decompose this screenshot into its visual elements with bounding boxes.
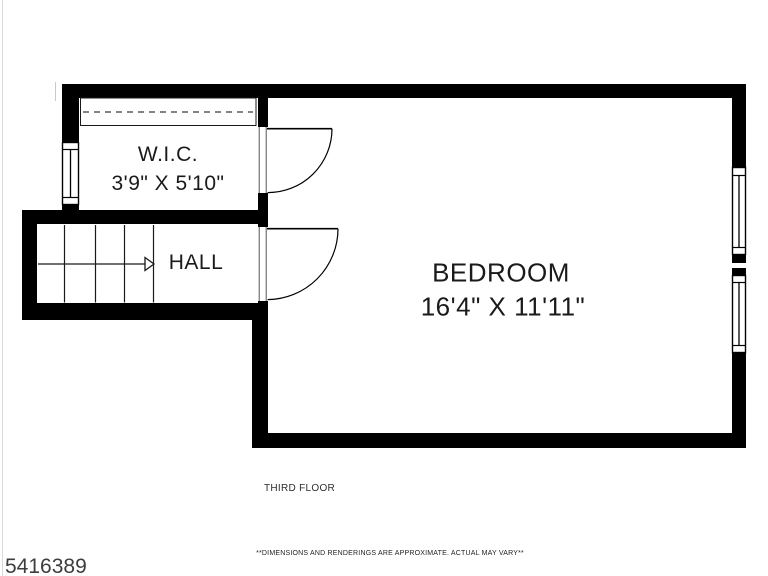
wall-wic-left-lower — [62, 205, 79, 213]
wic-room-dimensions: 3'9" X 5'10" — [112, 172, 225, 196]
wic-window — [63, 143, 79, 205]
bedroom-window-upper — [733, 168, 746, 255]
wic-door-swing-arc — [268, 129, 332, 193]
stairs — [38, 225, 154, 303]
bedroom-room-label: BEDROOM — [432, 258, 570, 289]
wall-top — [62, 84, 746, 98]
stairs-direction-arrow-icon — [145, 258, 154, 271]
hall-room-label: HALL — [169, 251, 224, 275]
hall-door — [259, 227, 338, 301]
wall-hall-left — [22, 210, 37, 320]
wall-divider-mid — [258, 193, 268, 227]
listing-id: 5416389 — [5, 555, 87, 576]
wall-bedroom-left-lower — [252, 303, 268, 448]
wall-divider-lower — [258, 301, 268, 305]
bedroom-window-lower — [733, 276, 746, 353]
bedroom-room-dimensions: 16'4" X 11'11" — [421, 292, 586, 323]
wic-room-label: W.I.C. — [138, 143, 198, 167]
wall-right-window-separator-b — [732, 268, 746, 275]
floor-plan: W.I.C. 3'9" X 5'10" HALL BEDROOM 16'4" X… — [0, 0, 768, 576]
wall-wic-left-upper — [62, 84, 79, 142]
floor-plan-linework — [0, 0, 768, 576]
wall-right-upper — [732, 84, 746, 167]
walls — [22, 84, 746, 448]
floor-name-label: THIRD FLOOR — [264, 483, 335, 494]
wall-bottom — [252, 433, 746, 448]
closet-shelf — [81, 98, 257, 126]
dimensions-disclaimer: **DIMENSIONS AND RENDERINGS ARE APPROXIM… — [256, 550, 524, 557]
wall-right-window-separator-a — [732, 255, 746, 263]
wic-door — [259, 127, 332, 193]
wall-divider-upper — [258, 98, 268, 127]
hall-door-swing-arc — [268, 229, 338, 300]
wall-hall-top-band — [22, 210, 268, 224]
wall-hall-bottom — [22, 303, 268, 320]
